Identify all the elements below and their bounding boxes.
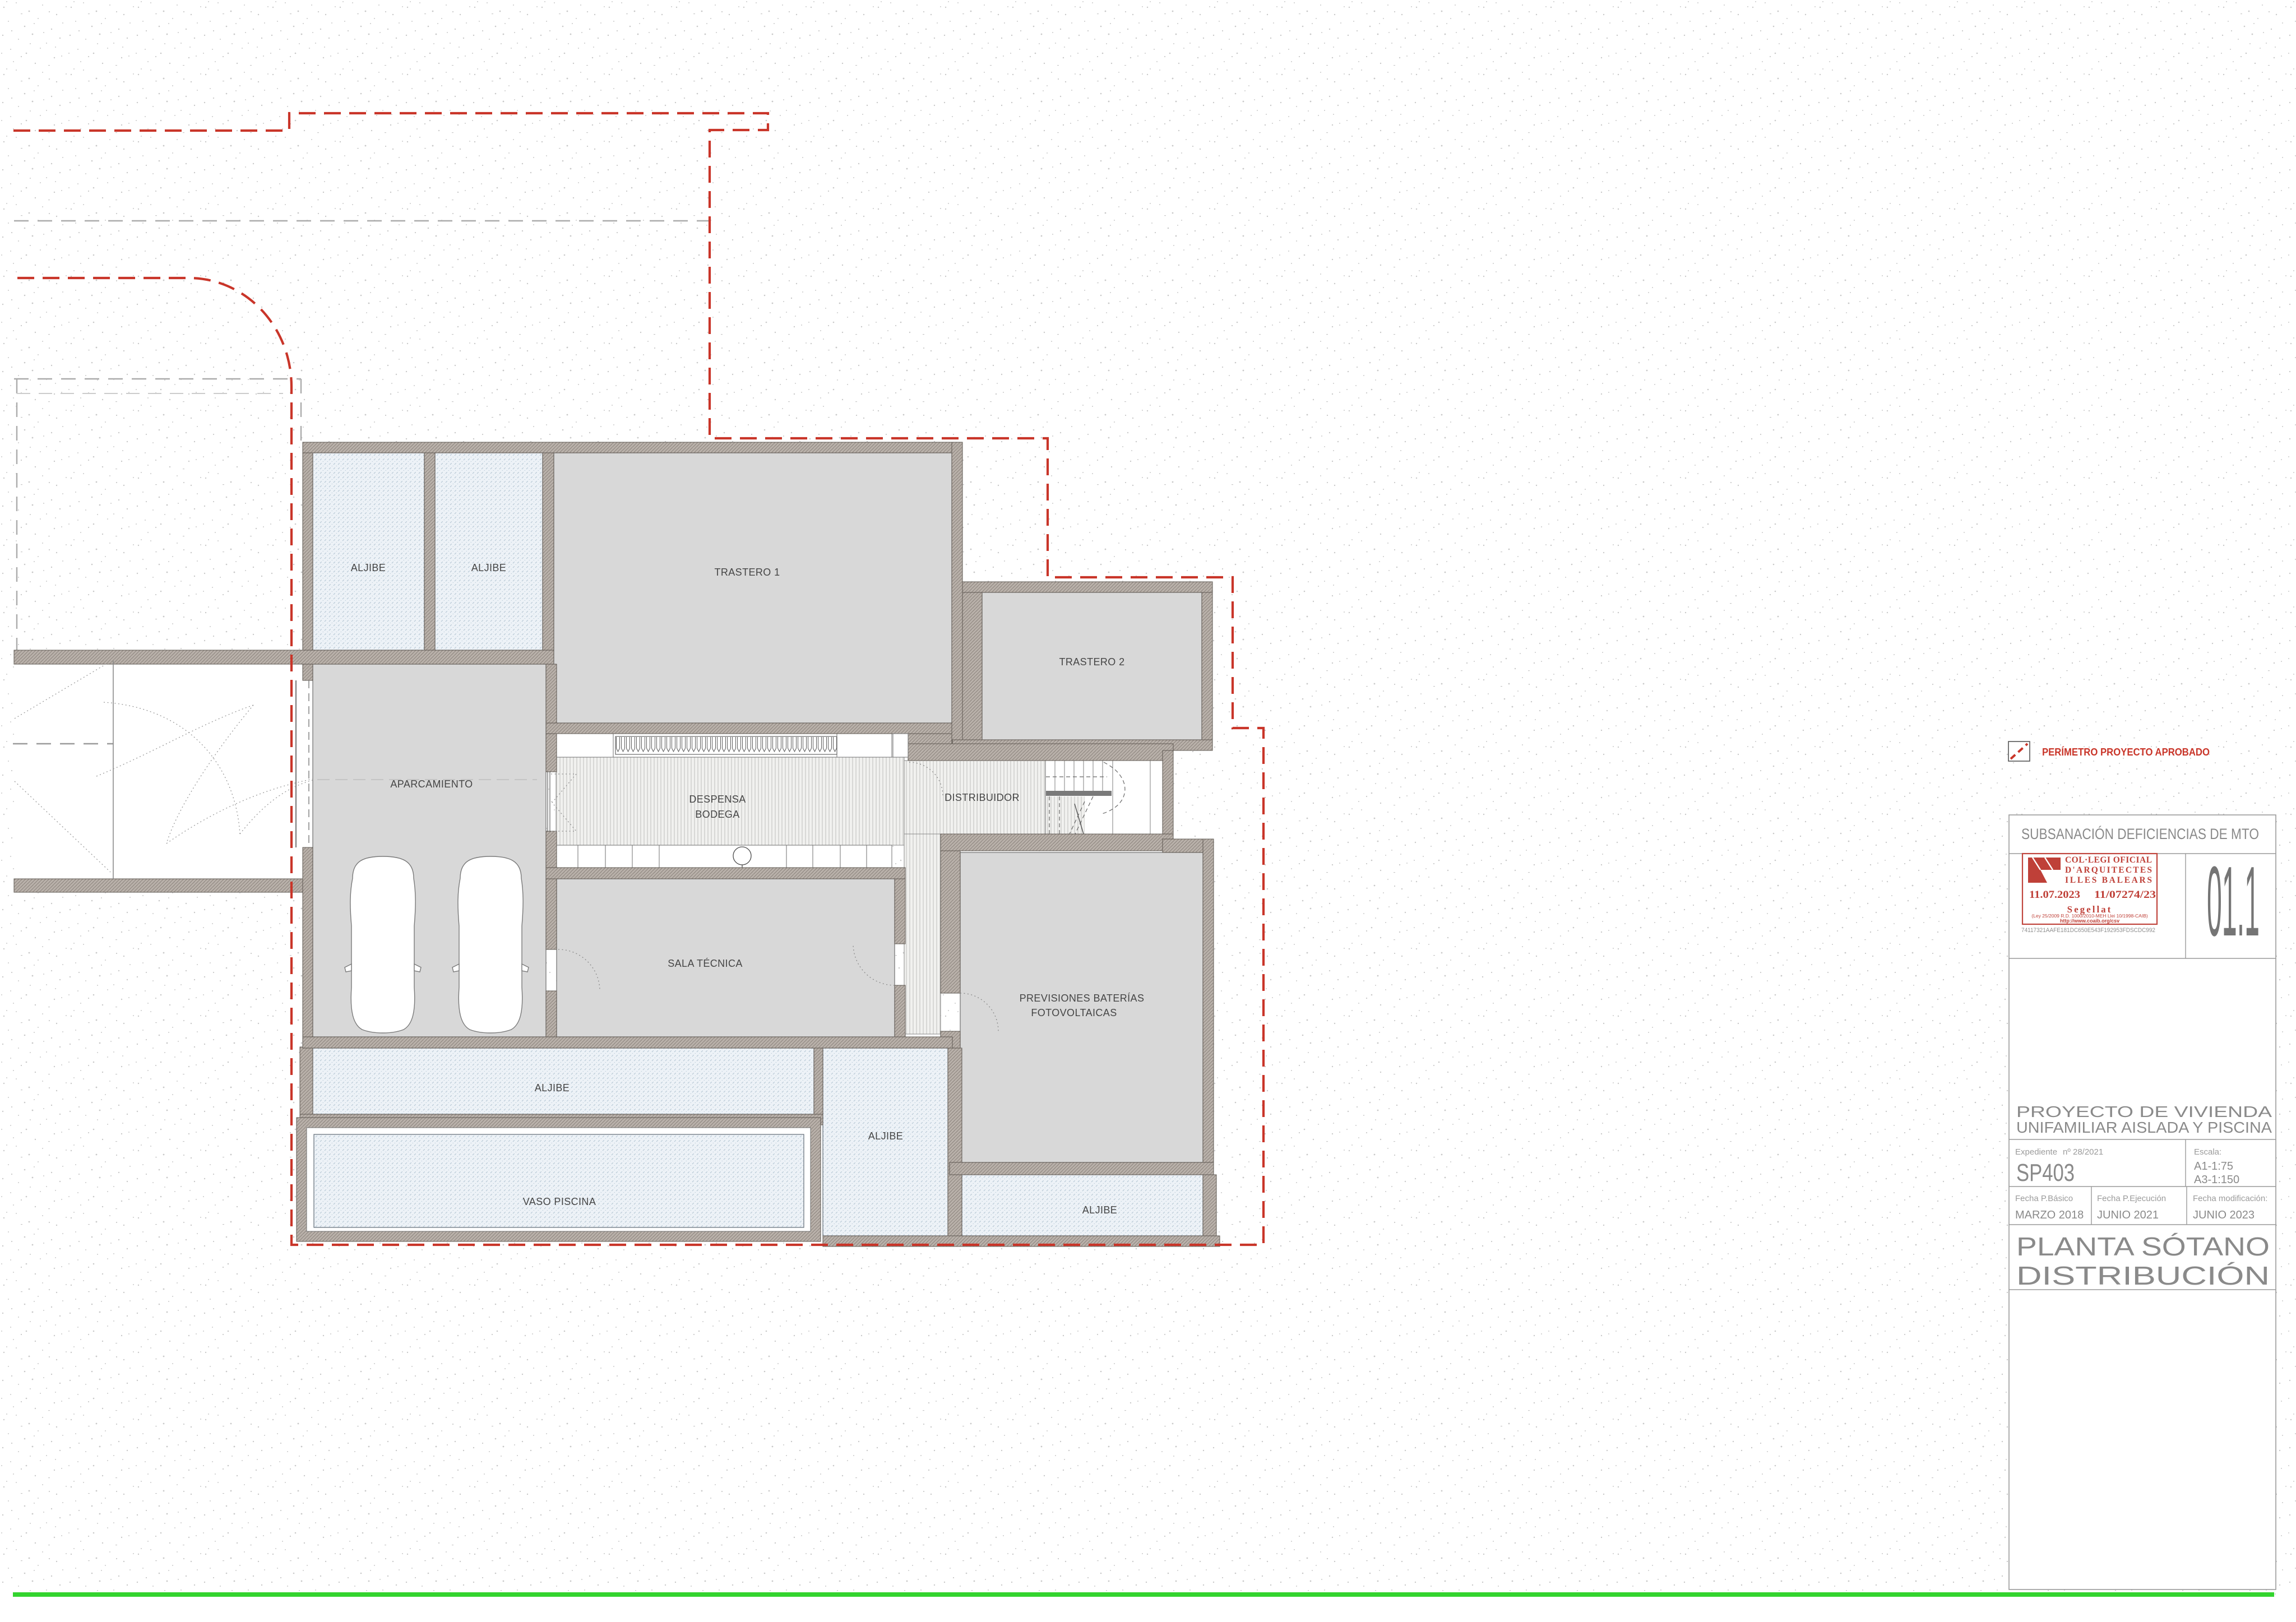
svg-text:11/07274/23: 11/07274/23 bbox=[2094, 889, 2156, 901]
svg-text:PERÍMETRO PROYECTO APROBADO: PERÍMETRO PROYECTO APROBADO bbox=[2042, 746, 2210, 758]
svg-text:74117321AAFE181DC650E543F19295: 74117321AAFE181DC650E543F192953FDSCDC992 bbox=[2021, 927, 2155, 934]
svg-text:Fecha modificación:: Fecha modificación: bbox=[2193, 1194, 2267, 1203]
svg-text:DISTRIBUIDOR: DISTRIBUIDOR bbox=[945, 792, 1020, 803]
svg-text:http://www.coaib.org/csv: http://www.coaib.org/csv bbox=[2060, 918, 2119, 924]
svg-text:ALJIBE: ALJIBE bbox=[351, 562, 386, 573]
svg-text:MARZO 2018: MARZO 2018 bbox=[2015, 1209, 2084, 1221]
svg-text:Fecha P.Básico: Fecha P.Básico bbox=[2015, 1194, 2073, 1203]
svg-text:A3-1:150: A3-1:150 bbox=[2194, 1174, 2239, 1186]
svg-text:11.07.2023: 11.07.2023 bbox=[2029, 889, 2080, 901]
svg-text:Expediente: Expediente bbox=[2015, 1147, 2057, 1157]
svg-text:SUBSANACIÓN DEFICIENCIAS DE MT: SUBSANACIÓN DEFICIENCIAS DE MTO bbox=[2021, 825, 2259, 842]
svg-text:BODEGA: BODEGA bbox=[695, 809, 739, 820]
svg-text:VASO PISCINA: VASO PISCINA bbox=[523, 1196, 596, 1207]
svg-text:JUNIO 2021: JUNIO 2021 bbox=[2097, 1209, 2159, 1221]
svg-text:DESPENSA: DESPENSA bbox=[689, 794, 746, 805]
svg-text:APARCAMIENTO: APARCAMIENTO bbox=[390, 778, 473, 790]
svg-text:Escala:: Escala: bbox=[2194, 1147, 2221, 1157]
svg-text:01.1: 01.1 bbox=[2207, 846, 2260, 957]
svg-text:PLANTA SÓTANO: PLANTA SÓTANO bbox=[2016, 1232, 2270, 1261]
svg-text:ALJIBE: ALJIBE bbox=[535, 1082, 570, 1093]
svg-text:UNIFAMILIAR AISLADA Y PISCINA: UNIFAMILIAR AISLADA Y PISCINA bbox=[2016, 1119, 2272, 1136]
svg-text:SP403: SP403 bbox=[2016, 1159, 2075, 1187]
svg-text:nº 28/2021: nº 28/2021 bbox=[2063, 1147, 2103, 1157]
svg-text:A1-1:75: A1-1:75 bbox=[2194, 1160, 2233, 1173]
svg-text:TRASTERO 2: TRASTERO 2 bbox=[1059, 656, 1124, 668]
svg-text:ALJIBE: ALJIBE bbox=[471, 562, 506, 573]
svg-text:SALA TÉCNICA: SALA TÉCNICA bbox=[668, 958, 743, 969]
svg-text:Fecha P.Ejecución: Fecha P.Ejecución bbox=[2097, 1194, 2166, 1203]
svg-text:JUNIO 2023: JUNIO 2023 bbox=[2193, 1209, 2255, 1221]
svg-text:TRASTERO 1: TRASTERO 1 bbox=[714, 567, 780, 578]
svg-text:PREVISIONES BATERÍAS: PREVISIONES BATERÍAS bbox=[1020, 993, 1145, 1004]
svg-text:DISTRIBUCIÓN: DISTRIBUCIÓN bbox=[2016, 1261, 2270, 1290]
svg-text:ALJIBE: ALJIBE bbox=[1082, 1204, 1117, 1216]
svg-text:COL·LEGI OFICIAL: COL·LEGI OFICIAL bbox=[2065, 855, 2152, 865]
svg-text:ALJIBE: ALJIBE bbox=[868, 1130, 903, 1142]
svg-text:FOTOVOLTAICAS: FOTOVOLTAICAS bbox=[1031, 1007, 1117, 1018]
svg-text:PROYECTO DE VIVIENDA: PROYECTO DE VIVIENDA bbox=[2016, 1103, 2272, 1120]
